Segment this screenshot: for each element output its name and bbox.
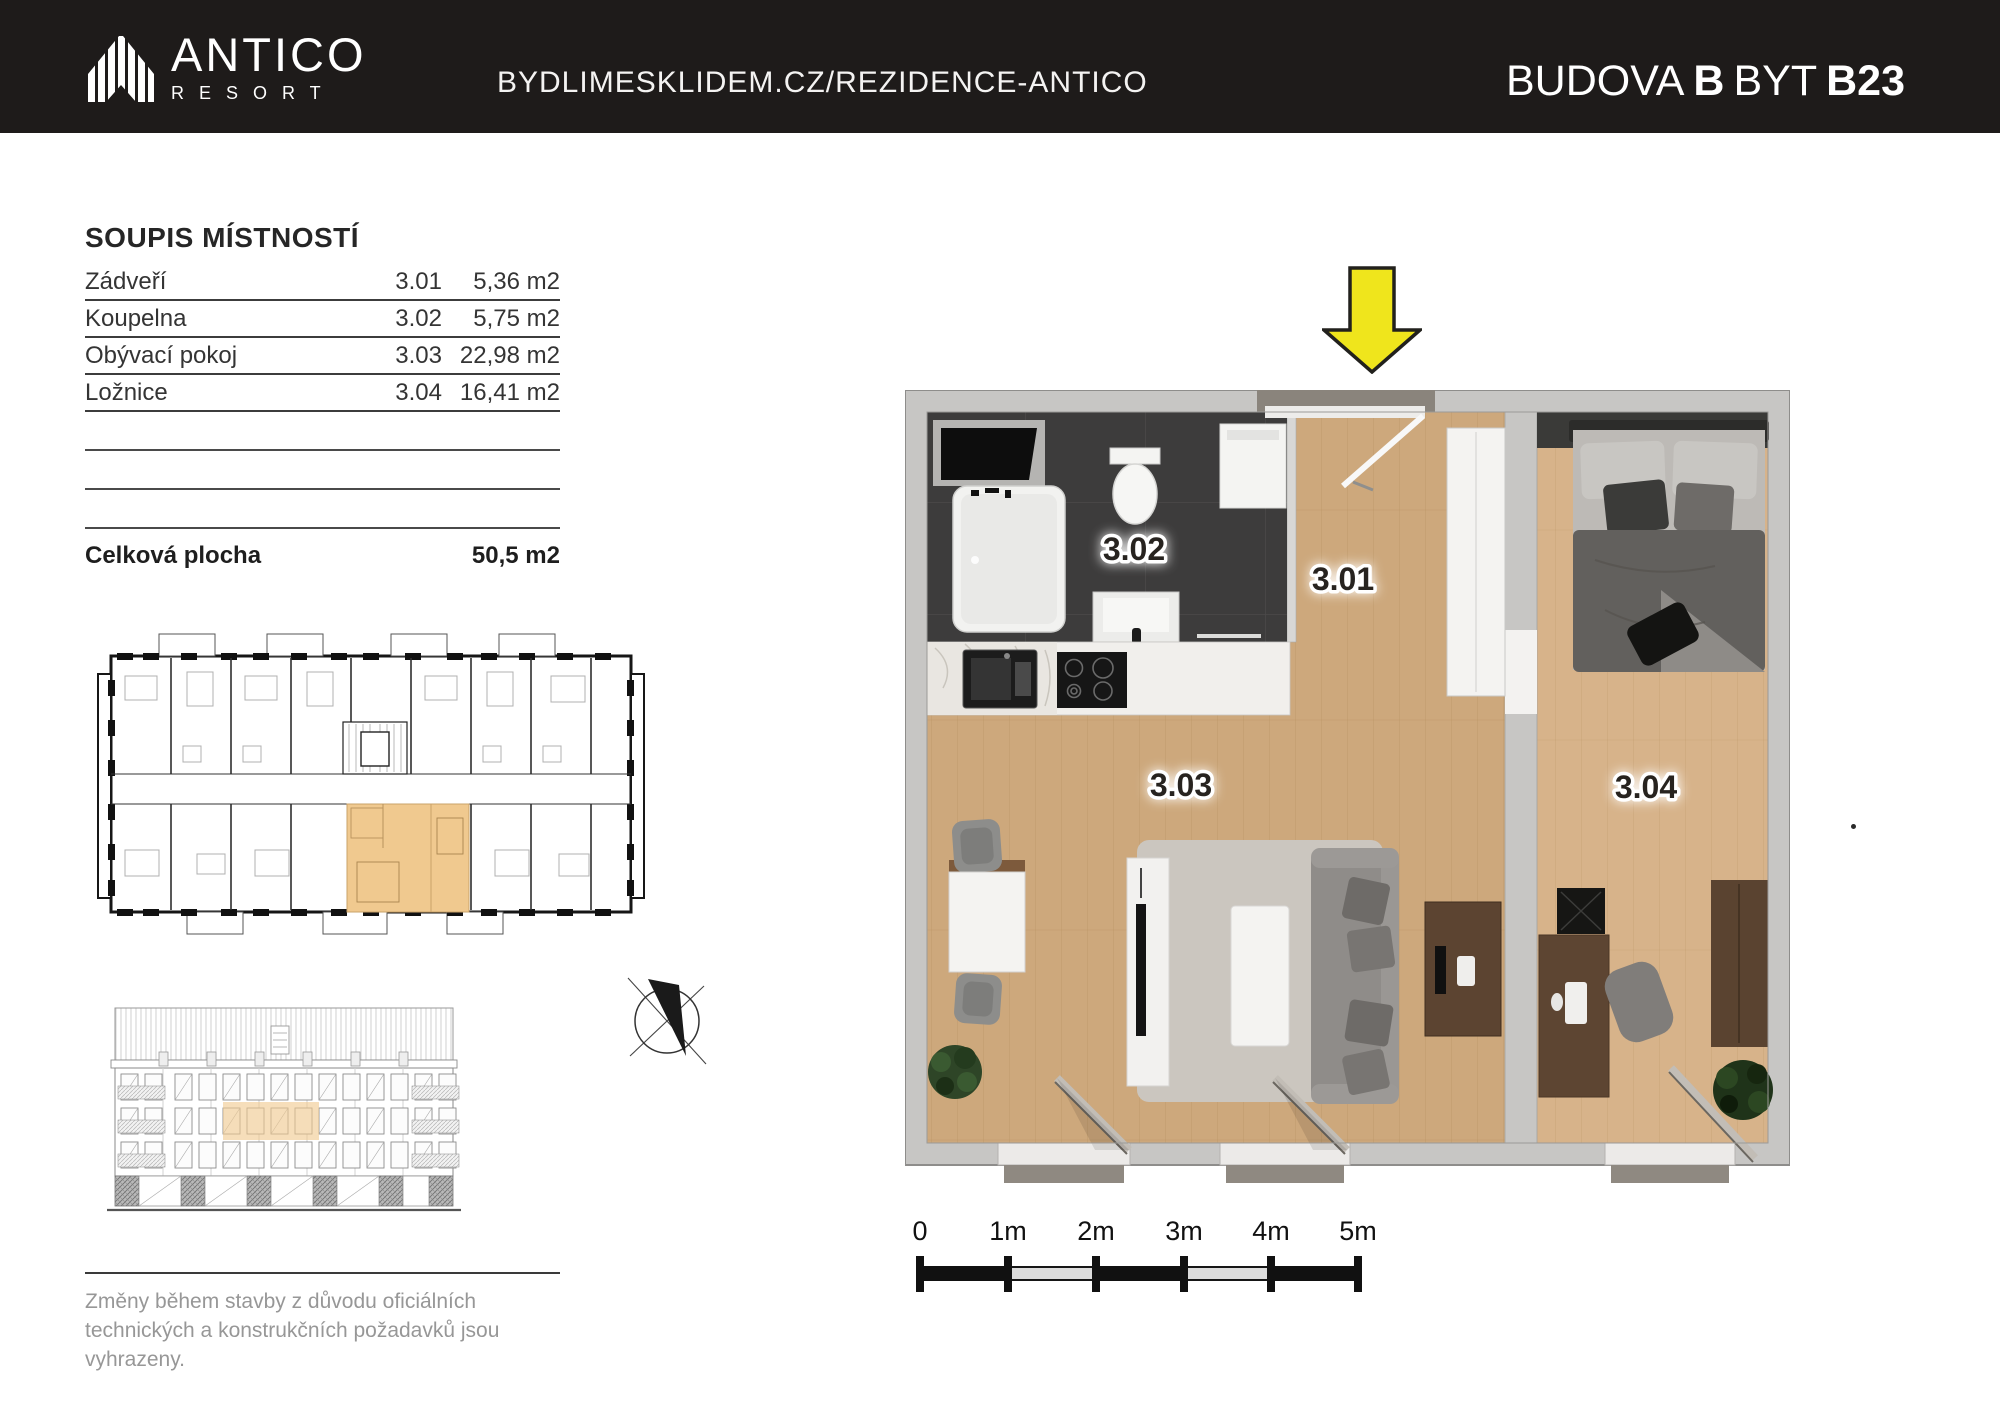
- highlighted-unit: [347, 804, 469, 912]
- kitchen: [927, 642, 1290, 715]
- scale-segment: [1184, 1266, 1271, 1281]
- total-value: 50,5 m2: [442, 542, 560, 570]
- scale-segment: [1271, 1266, 1358, 1281]
- room-number: 3.01: [352, 268, 442, 296]
- scale-label: 4m: [1252, 1216, 1290, 1247]
- highlighted-unit-elevation: [223, 1102, 319, 1140]
- table-row: Zádveří 3.01 5,36 m2: [85, 264, 560, 301]
- disclaimer: Změny během stavby z důvodu oficiálních …: [85, 1272, 560, 1375]
- sink-faucet: [1132, 628, 1141, 644]
- table-row: Obývací pokoj 3.03 22,98 m2: [85, 338, 560, 375]
- room-area: 22,98 m2: [442, 342, 560, 370]
- table-row-empty: [85, 412, 560, 451]
- scale-tick: [1267, 1256, 1275, 1292]
- room-name: Zádveří: [85, 268, 352, 296]
- scale-label: 3m: [1165, 1216, 1203, 1247]
- room-area: 5,36 m2: [442, 268, 560, 296]
- sofa: [1311, 848, 1399, 1104]
- scale-label: 5m: [1339, 1216, 1377, 1247]
- towel-rail: [1197, 634, 1261, 638]
- scale-segment: [920, 1266, 1008, 1281]
- dining-table: [949, 872, 1025, 972]
- keyboard: [1565, 982, 1587, 1024]
- room-area: 5,75 m2: [442, 305, 560, 333]
- tv: [1136, 904, 1146, 1036]
- brand: ANTICO RESORT: [85, 28, 367, 104]
- room-name: Koupelna: [85, 305, 352, 333]
- desk-monitor: [1435, 946, 1446, 994]
- brand-subtitle: RESORT: [171, 84, 367, 102]
- building-label: BUDOVA: [1506, 57, 1684, 105]
- stove: [1057, 652, 1127, 708]
- room-number: 3.02: [352, 305, 442, 333]
- site-url: BYDLIMESKLIDEM.CZ/REZIDENCE-ANTICO: [497, 66, 1148, 100]
- room-label-bedroom: 3.04: [1615, 769, 1677, 805]
- scale-segment: [1008, 1266, 1096, 1281]
- unit-label: BYT: [1733, 57, 1817, 105]
- coffee-table: [1231, 906, 1289, 1046]
- living-bedroom-wall: [1505, 412, 1537, 1143]
- room-number: 3.04: [352, 379, 442, 407]
- total-label: Celková plocha: [85, 542, 442, 570]
- scale-tick: [1092, 1256, 1100, 1292]
- scale-tick: [1180, 1256, 1188, 1292]
- scale-bar: 0 1m 2m 3m 4m 5m: [905, 1216, 1385, 1306]
- brand-name: ANTICO: [171, 31, 367, 78]
- entrance-arrow-icon: [1322, 266, 1422, 374]
- room-label-living: 3.03: [1150, 767, 1212, 803]
- table-row: Ložnice 3.04 16,41 m2: [85, 375, 560, 412]
- table-row: Koupelna 3.02 5,75 m2: [85, 301, 560, 338]
- toilet-tank: [1110, 448, 1160, 464]
- table-row-empty: [85, 490, 560, 529]
- floorplan-render: 3.01 3.02 3.03 3.04: [905, 390, 1790, 1190]
- table-row-total: Celková plocha 50,5 m2: [85, 529, 560, 573]
- room-list: SOUPIS MÍSTNOSTÍ Zádveří 3.01 5,36 m2 Ko…: [85, 222, 560, 573]
- scale-label: 0: [912, 1216, 927, 1247]
- scale-segment: [1096, 1266, 1184, 1281]
- bathroom: [927, 412, 1287, 644]
- bed: [1569, 420, 1769, 672]
- bedroom-plant: [1713, 1060, 1773, 1120]
- ground-floor: [115, 1176, 453, 1206]
- scale-label: 2m: [1077, 1216, 1115, 1247]
- room-list-title: SOUPIS MÍSTNOSTÍ: [85, 222, 560, 254]
- room-area: 16,41 m2: [442, 379, 560, 407]
- antico-logo-icon: [85, 28, 157, 104]
- unit-value: B23: [1826, 57, 1905, 105]
- header-bar: ANTICO RESORT BYDLIMESKLIDEM.CZ/REZIDENC…: [0, 0, 2000, 133]
- building-floorplan-overview: [95, 618, 647, 943]
- scale-label: 1m: [989, 1216, 1027, 1247]
- scale-tick: [1354, 1256, 1362, 1292]
- room-label-bathroom: 3.02: [1103, 531, 1165, 567]
- compass-icon: [612, 966, 722, 1076]
- building-value: B: [1693, 57, 1724, 105]
- building-elevation-drawing: [105, 1002, 463, 1216]
- scale-tick: [1004, 1256, 1012, 1292]
- stair-core: [343, 722, 407, 774]
- bedroom-doorway: [1505, 630, 1537, 714]
- table-row-empty: [85, 451, 560, 490]
- room-number: 3.03: [352, 342, 442, 370]
- bathroom-hall-wall: [1287, 412, 1296, 642]
- brand-text: ANTICO RESORT: [171, 31, 367, 102]
- disclaimer-text: Změny během stavby z důvodu oficiálních …: [85, 1288, 530, 1375]
- room-name: Ložnice: [85, 379, 352, 407]
- scale-tick: [916, 1256, 924, 1292]
- room-label-hall: 3.01: [1312, 561, 1374, 597]
- page: ANTICO RESORT BYDLIMESKLIDEM.CZ/REZIDENC…: [0, 0, 2000, 1414]
- unit-title: BUDOVABBYTB23: [1506, 57, 1905, 106]
- room-name: Obývací pokoj: [85, 342, 352, 370]
- stray-dot: [1851, 824, 1856, 829]
- toilet: [1113, 464, 1157, 524]
- tv-stand: [1127, 858, 1169, 1086]
- bathroom-window: [941, 428, 1037, 480]
- plant: [928, 1045, 982, 1099]
